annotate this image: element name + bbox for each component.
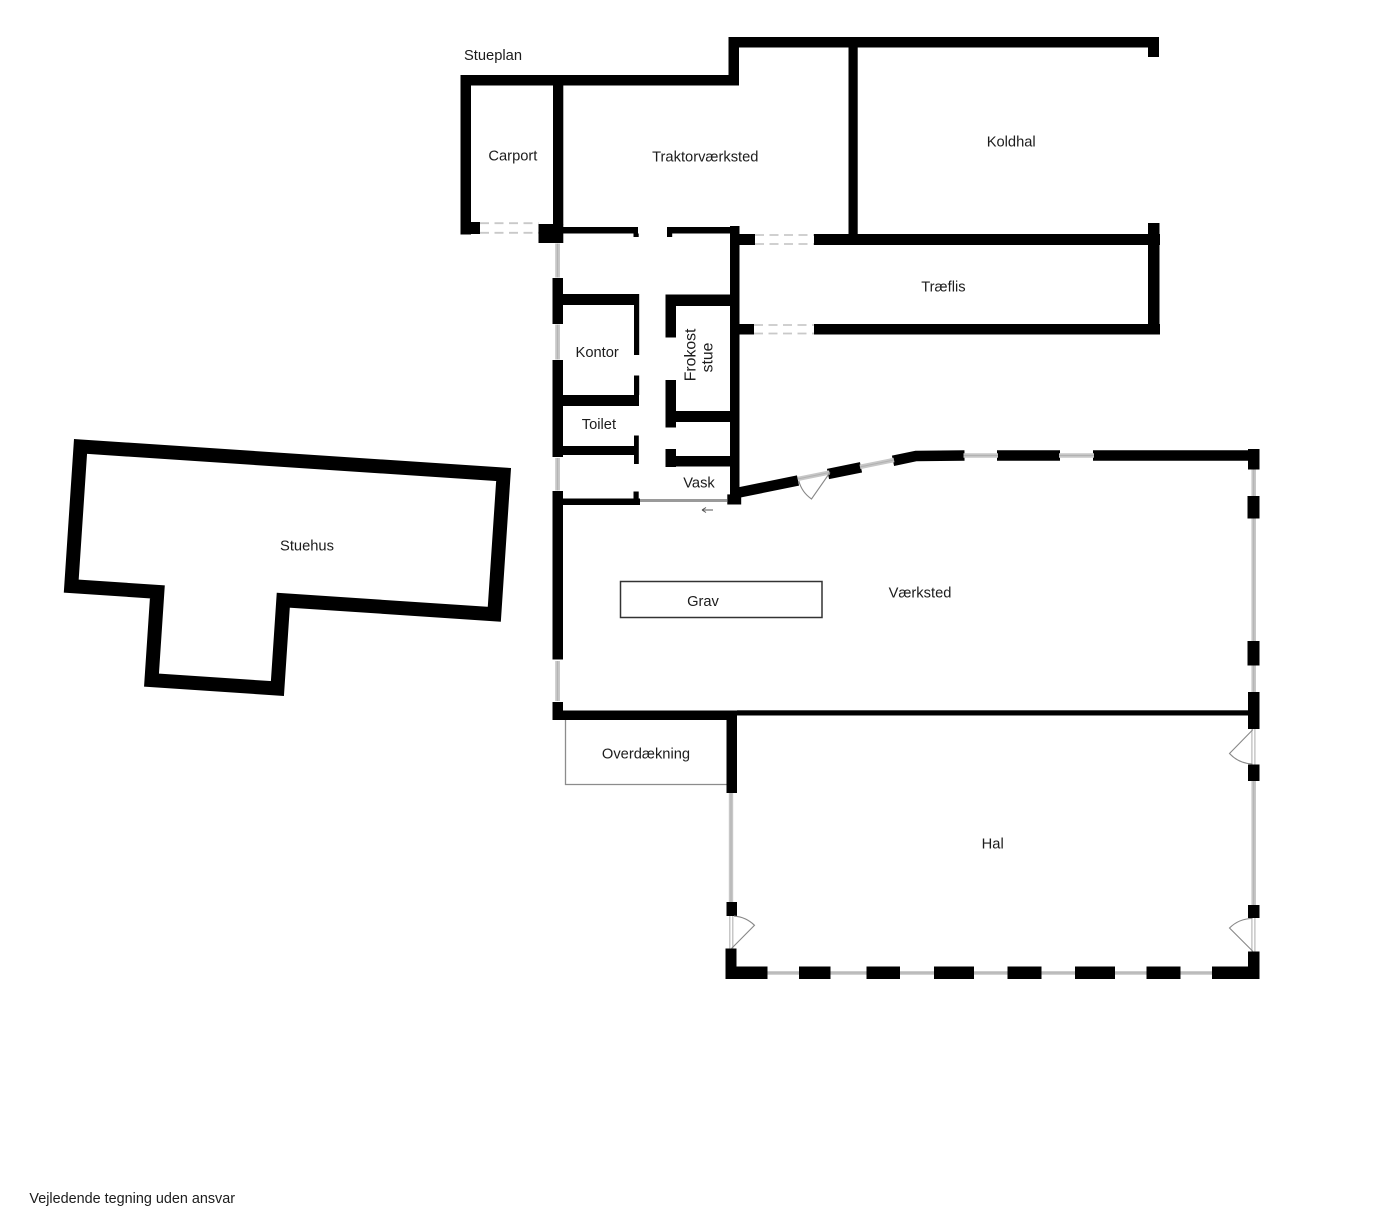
svg-text:Vask: Vask [683, 476, 715, 492]
svg-text:Træflis: Træflis [921, 280, 965, 296]
svg-text:Hal: Hal [982, 837, 1004, 853]
svg-text:stue: stue [699, 342, 716, 372]
svg-text:Stueplan: Stueplan [464, 48, 522, 64]
svg-text:Værksted: Værksted [889, 586, 952, 602]
svg-text:Carport: Carport [488, 149, 537, 165]
svg-text:Traktorværksted: Traktorværksted [652, 150, 758, 166]
svg-text:Stuehus: Stuehus [280, 539, 334, 555]
svg-text:Kontor: Kontor [576, 345, 619, 361]
svg-text:Vejledende tegning uden ansvar: Vejledende tegning uden ansvar [29, 1191, 235, 1207]
svg-text:Frokost: Frokost [682, 328, 699, 381]
svg-text:Toilet: Toilet [582, 417, 616, 433]
svg-text:Overdækning: Overdækning [602, 747, 690, 763]
svg-text:Grav: Grav [687, 594, 719, 610]
svg-text:Koldhal: Koldhal [987, 134, 1036, 150]
